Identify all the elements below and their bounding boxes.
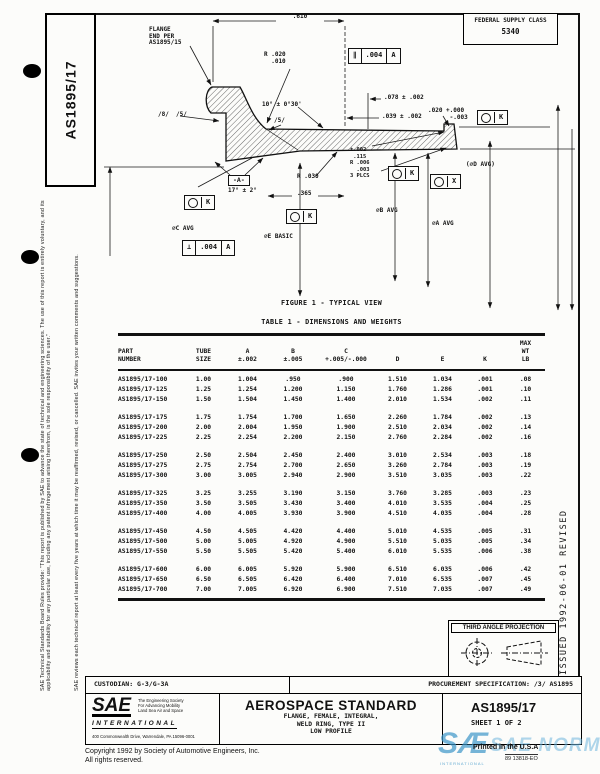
- sheet-number: SHEET 1 OF 2: [471, 719, 581, 727]
- table-row: AS1895/17-2752.752.7542.7002.6503.2602.7…: [118, 461, 545, 471]
- table-cell: 6.005: [227, 565, 268, 575]
- table-cell: 3.25: [180, 489, 227, 499]
- table-cell: .23: [506, 489, 545, 499]
- table-cell: .002: [464, 433, 506, 443]
- table-cell: 1.754: [227, 413, 268, 423]
- table-cell: 6.920: [268, 585, 318, 595]
- table-cell: .007: [464, 585, 506, 595]
- table-cell: 1.254: [227, 385, 268, 395]
- table-cell: 1.50: [180, 395, 227, 405]
- table-cell: .005: [464, 527, 506, 537]
- table-title: TABLE 1 - DIMENSIONS AND WEIGHTS: [118, 318, 545, 326]
- table-cell: 7.035: [421, 585, 464, 595]
- sae-international: INTERNATIONAL: [92, 720, 177, 729]
- table-cell: 5.005: [227, 537, 268, 547]
- table-cell: 3.190: [268, 489, 318, 499]
- table-cell: 2.004: [227, 423, 268, 433]
- table-cell: .28: [506, 509, 545, 519]
- table-cell: 3.430: [268, 499, 318, 509]
- table-cell: .003: [464, 461, 506, 471]
- table-cell: 1.950: [268, 423, 318, 433]
- table-row: AS1895/17-4504.504.5054.4204.4005.0104.5…: [118, 527, 545, 537]
- issued-revised-strip: ISSUED 1992-06-01 REVISED: [559, 405, 575, 675]
- table-row: AS1895/17-1751.751.7541.7001.6502.2601.7…: [118, 413, 545, 423]
- table-cell: .08: [506, 375, 545, 385]
- table-cell: 5.900: [318, 565, 374, 575]
- sae-logo-cell: SAE The Engineering Society For Advancin…: [86, 694, 220, 744]
- table-cell: AS1895/17-275: [118, 461, 180, 471]
- figure-dimension-label: .020 +.000 -.003: [428, 108, 468, 121]
- figure-dimension-label: ⌀A AVG: [432, 221, 454, 228]
- table-cell: 2.25: [180, 433, 227, 443]
- table-cell: 6.010: [374, 547, 421, 557]
- print-code: 89 13818-EO: [505, 754, 538, 762]
- printed-in-usa: Printed in the U.S.A: [473, 744, 538, 751]
- table-cell: 2.284: [421, 433, 464, 443]
- table-cell: AS1895/17-650: [118, 575, 180, 585]
- table-cell: 4.005: [227, 509, 268, 519]
- document-type: AEROSPACE STANDARD: [220, 698, 442, 713]
- table-cell: 2.450: [268, 451, 318, 461]
- table-cell: 1.034: [421, 375, 464, 385]
- table-cell: 1.75: [180, 413, 227, 423]
- figure-dimension-label: .039 ± .002: [382, 114, 422, 121]
- table-cell: 4.900: [318, 537, 374, 547]
- table-row: AS1895/17-1001.001.004.950.9001.5101.034…: [118, 375, 545, 385]
- datum-circle-icon: [392, 169, 402, 179]
- table-cell: 5.510: [374, 537, 421, 547]
- table-cell: 6.505: [227, 575, 268, 585]
- figure-dimension-label: ⌀B AVG: [376, 208, 398, 215]
- table-header-cell: B ±.005: [268, 348, 318, 368]
- table-cell: 1.25: [180, 385, 227, 395]
- figure-dimension-label: /8/ /5/: [158, 112, 187, 119]
- scanned-standard-page: AS1895/17 FEDERAL SUPPLY CLASS 5340 SAE …: [0, 0, 600, 774]
- table-row: AS1895/17-1501.501.5041.4501.4002.0101.5…: [118, 395, 545, 405]
- table-cell: AS1895/17-350: [118, 499, 180, 509]
- table-cell: 5.505: [227, 547, 268, 557]
- table-row: AS1895/17-3003.003.0052.9402.9003.5103.0…: [118, 471, 545, 481]
- figure-annotations: .610FLANGE END PER AS1895/15R .020 .0101…: [0, 0, 600, 340]
- table-cell: .14: [506, 423, 545, 433]
- table-cell: 7.005: [227, 585, 268, 595]
- table-cell: 3.150: [318, 489, 374, 499]
- datum-target-symbol: K: [388, 166, 419, 181]
- table-cell: 3.285: [421, 489, 464, 499]
- table-cell: 2.784: [421, 461, 464, 471]
- table-cell: 2.940: [268, 471, 318, 481]
- table-cell: .001: [464, 375, 506, 385]
- datum-circle-icon: [290, 212, 300, 222]
- table-cell: 2.510: [374, 423, 421, 433]
- table-cell: 6.400: [318, 575, 374, 585]
- table-cell: AS1895/17-550: [118, 547, 180, 557]
- table-cell: 2.400: [318, 451, 374, 461]
- table-cell: 2.754: [227, 461, 268, 471]
- table-cell: 4.510: [374, 509, 421, 519]
- table-cell: 3.260: [374, 461, 421, 471]
- table-cell: 1.534: [421, 395, 464, 405]
- table-cell: .900: [318, 375, 374, 385]
- figure-dimension-label: ⌀C AVG: [172, 226, 194, 233]
- table-row: AS1895/17-2502.502.5042.4502.4003.0102.5…: [118, 451, 545, 461]
- table-cell: 7.010: [374, 575, 421, 585]
- table-cell: 3.50: [180, 499, 227, 509]
- table-cell: 1.504: [227, 395, 268, 405]
- table-cell: .16: [506, 433, 545, 443]
- table-cell: 3.400: [318, 499, 374, 509]
- table-cell: 5.920: [268, 565, 318, 575]
- sae-address: 400 Commonwealth Drive, Warrendale, PA 1…: [92, 734, 195, 739]
- table-cell: 1.00: [180, 375, 227, 385]
- table-cell: 1.286: [421, 385, 464, 395]
- table-cell: AS1895/17-250: [118, 451, 180, 461]
- table-cell: .31: [506, 527, 545, 537]
- table-row: AS1895/17-5505.505.5055.4205.4006.0105.5…: [118, 547, 545, 557]
- table-cell: .13: [506, 413, 545, 423]
- table-cell: AS1895/17-500: [118, 537, 180, 547]
- table-cell: 7.00: [180, 585, 227, 595]
- figure-dimension-label: ±.002 .115 R .006 .003 3 PLCS: [350, 147, 369, 180]
- table-cell: 2.534: [421, 451, 464, 461]
- table-cell: .004: [464, 499, 506, 509]
- datum-target-symbol: K: [477, 110, 508, 125]
- table-cell: 6.035: [421, 565, 464, 575]
- datum-target-symbol: K: [184, 195, 215, 210]
- table-row: AS1895/17-6006.006.0055.9205.9006.5106.0…: [118, 565, 545, 575]
- table-cell: .25: [506, 499, 545, 509]
- table-row: AS1895/17-3253.253.2553.1903.1503.7603.2…: [118, 489, 545, 499]
- table-cell: 3.510: [374, 471, 421, 481]
- table-cell: 4.505: [227, 527, 268, 537]
- table-header-cell: TUBE SIZE: [180, 348, 227, 368]
- figure-dimension-label: 10° ± 0°30': [262, 102, 302, 109]
- table-row: AS1895/17-1251.251.2541.2001.1501.7601.2…: [118, 385, 545, 395]
- table-cell: 4.00: [180, 509, 227, 519]
- table-cell: .002: [464, 423, 506, 433]
- table-cell: .003: [464, 471, 506, 481]
- figure-dimension-label: .610: [293, 14, 307, 21]
- vendor-watermark: SÆ SAE NORM INTERNATIONAL: [438, 729, 600, 774]
- table-cell: .005: [464, 537, 506, 547]
- figure-dimension-label: .365: [297, 191, 311, 198]
- table-cell: 5.00: [180, 537, 227, 547]
- table-cell: 1.400: [318, 395, 374, 405]
- table-cell: 1.004: [227, 375, 268, 385]
- table-cell: 3.505: [227, 499, 268, 509]
- figure-dimension-label: R .030: [297, 174, 319, 181]
- third-angle-projection-label: THIRD ANGLE PROJECTION: [451, 623, 556, 633]
- table-cell: AS1895/17-700: [118, 585, 180, 595]
- figure-dimension-label: FLANGE END PER AS1895/15: [149, 27, 182, 47]
- table-cell: 2.254: [227, 433, 268, 443]
- dimensions-table: PART NUMBERTUBE SIZEA ±.002B ±.005C +.00…: [118, 333, 545, 603]
- table-header-cell: K: [464, 356, 506, 368]
- table-row: AS1895/17-3503.503.5053.4303.4004.0103.5…: [118, 499, 545, 509]
- table-cell: 2.650: [318, 461, 374, 471]
- table-cell: .950: [268, 375, 318, 385]
- sae-tagline: The Engineering Society For Advancing Mo…: [138, 698, 184, 713]
- table-cell: 5.420: [268, 547, 318, 557]
- table-header-cell: A ±.002: [227, 348, 268, 368]
- table-cell: 4.920: [268, 537, 318, 547]
- table-cell: 2.200: [268, 433, 318, 443]
- table-cell: 1.900: [318, 423, 374, 433]
- table-header-cell: D: [374, 356, 421, 368]
- table-cell: .34: [506, 537, 545, 547]
- figure-dimension-label: ⌀E BASIC: [264, 234, 293, 241]
- datum-circle-icon: [188, 198, 198, 208]
- table-cell: 2.010: [374, 395, 421, 405]
- table-cell: AS1895/17-225: [118, 433, 180, 443]
- table-cell: .007: [464, 575, 506, 585]
- table-cell: .49: [506, 585, 545, 595]
- table-cell: AS1895/17-325: [118, 489, 180, 499]
- table-cell: .11: [506, 395, 545, 405]
- table-cell: 2.260: [374, 413, 421, 423]
- table-cell: 2.75: [180, 461, 227, 471]
- figure-dimension-label: R .020 .010: [264, 52, 286, 65]
- table-cell: AS1895/17-300: [118, 471, 180, 481]
- table-cell: AS1895/17-175: [118, 413, 180, 423]
- table-cell: 1.510: [374, 375, 421, 385]
- table-cell: 4.535: [421, 527, 464, 537]
- table-cell: 4.50: [180, 527, 227, 537]
- table-cell: 5.035: [421, 537, 464, 547]
- table-cell: 1.760: [374, 385, 421, 395]
- table-header-cell: E: [421, 356, 464, 368]
- table-cell: 4.035: [421, 509, 464, 519]
- table-cell: .003: [464, 451, 506, 461]
- table-row: AS1895/17-4004.004.0053.9303.9004.5104.0…: [118, 509, 545, 519]
- table-cell: 3.005: [227, 471, 268, 481]
- table-cell: 1.200: [268, 385, 318, 395]
- table-cell: .006: [464, 565, 506, 575]
- document-number: AS1895/17: [471, 700, 581, 715]
- figure-dimension-label: (⌀D AVG): [466, 162, 495, 169]
- table-cell: .002: [464, 413, 506, 423]
- table-cell: 5.50: [180, 547, 227, 557]
- table-cell: .004: [464, 509, 506, 519]
- table-cell: 4.010: [374, 499, 421, 509]
- table-cell: 5.535: [421, 547, 464, 557]
- copyright-notice: Copyright 1992 by Society of Automotive …: [85, 747, 260, 765]
- table-cell: .45: [506, 575, 545, 585]
- table-header-row: PART NUMBERTUBE SIZEA ±.002B ±.005C +.00…: [118, 338, 545, 368]
- table-cell: 2.900: [318, 471, 374, 481]
- table-cell: 6.900: [318, 585, 374, 595]
- third-angle-projection-symbol: [449, 635, 554, 671]
- table-cell: 3.255: [227, 489, 268, 499]
- table-cell: 2.034: [421, 423, 464, 433]
- table-cell: AS1895/17-100: [118, 375, 180, 385]
- table-cell: AS1895/17-450: [118, 527, 180, 537]
- figure-caption: FIGURE 1 - TYPICAL VIEW: [118, 299, 545, 307]
- table-header-cell: PART NUMBER: [118, 348, 180, 368]
- table-cell: 2.150: [318, 433, 374, 443]
- feature-control-frame: ∥.004A: [348, 48, 401, 64]
- procurement-specification: PROCUREMENT SPECIFICATION: /3/ AS1895: [290, 677, 581, 694]
- table-cell: 4.420: [268, 527, 318, 537]
- third-angle-projection-box: THIRD ANGLE PROJECTION: [448, 620, 559, 678]
- table-cell: 7.510: [374, 585, 421, 595]
- table-cell: 2.00: [180, 423, 227, 433]
- table-cell: .10: [506, 385, 545, 395]
- datum-target-symbol: X: [430, 174, 461, 189]
- table-cell: 2.504: [227, 451, 268, 461]
- table-cell: 1.650: [318, 413, 374, 423]
- custodian-value: CUSTODIAN: G-3/G-3A: [86, 677, 290, 694]
- table-cell: 3.760: [374, 489, 421, 499]
- table-body: AS1895/17-1001.001.004.950.9001.5101.034…: [118, 375, 545, 595]
- watermark-subtext: INTERNATIONAL: [440, 761, 485, 766]
- table-cell: .006: [464, 547, 506, 557]
- table-cell: 1.700: [268, 413, 318, 423]
- table-cell: 2.760: [374, 433, 421, 443]
- table-row: AS1895/17-6506.506.5056.4206.4007.0106.5…: [118, 575, 545, 585]
- figure-dimension-label: 17° ± 2°: [228, 188, 257, 195]
- table-row: AS1895/17-2002.002.0041.9501.9002.5102.0…: [118, 423, 545, 433]
- table-cell: 3.900: [318, 509, 374, 519]
- table-cell: .42: [506, 565, 545, 575]
- table-cell: 3.00: [180, 471, 227, 481]
- table-cell: .38: [506, 547, 545, 557]
- feature-control-frame: ⊥.004A: [182, 240, 235, 256]
- table-cell: .22: [506, 471, 545, 481]
- table-cell: 4.400: [318, 527, 374, 537]
- figure-dimension-label: .078 ± .002: [384, 95, 424, 102]
- table-row: AS1895/17-7007.007.0056.9206.9007.5107.0…: [118, 585, 545, 595]
- table-cell: 2.50: [180, 451, 227, 461]
- table-cell: 1.784: [421, 413, 464, 423]
- table-header-cell: C +.005/-.000: [318, 348, 374, 368]
- table-cell: AS1895/17-150: [118, 395, 180, 405]
- datum-circle-icon: [434, 177, 444, 187]
- table-header-cell: MAX WT LB: [506, 340, 545, 368]
- document-type-cell: AEROSPACE STANDARD FLANGE, FEMALE, INTEG…: [220, 694, 443, 744]
- punch-hole: [21, 448, 39, 462]
- table-cell: 6.50: [180, 575, 227, 585]
- datum-circle-icon: [481, 113, 491, 123]
- table-cell: 1.150: [318, 385, 374, 395]
- table-cell: AS1895/17-200: [118, 423, 180, 433]
- table-cell: 2.700: [268, 461, 318, 471]
- table-cell: 6.535: [421, 575, 464, 585]
- table-row: AS1895/17-5005.005.0054.9204.9005.5105.0…: [118, 537, 545, 547]
- datum-identifier-box: -A-: [228, 175, 250, 186]
- table-cell: 6.510: [374, 565, 421, 575]
- table-cell: 3.010: [374, 451, 421, 461]
- table-cell: 6.420: [268, 575, 318, 585]
- table-cell: 1.450: [268, 395, 318, 405]
- table-cell: .001: [464, 385, 506, 395]
- table-cell: 6.00: [180, 565, 227, 575]
- table-cell: 5.400: [318, 547, 374, 557]
- datum-target-symbol: K: [286, 209, 317, 224]
- table-cell: AS1895/17-600: [118, 565, 180, 575]
- table-cell: .18: [506, 451, 545, 461]
- table-row: AS1895/17-2252.252.2542.2002.1502.7602.2…: [118, 433, 545, 443]
- table-cell: AS1895/17-400: [118, 509, 180, 519]
- table-cell: .003: [464, 489, 506, 499]
- figure-dimension-label: /5/: [274, 118, 285, 125]
- sae-logo: SAE: [92, 697, 131, 717]
- table-cell: 3.930: [268, 509, 318, 519]
- table-cell: AS1895/17-125: [118, 385, 180, 395]
- table-cell: 3.535: [421, 499, 464, 509]
- document-subtitle: FLANGE, FEMALE, INTEGRAL, WELD RING, TYP…: [220, 713, 442, 736]
- table-cell: 5.010: [374, 527, 421, 537]
- table-cell: .19: [506, 461, 545, 471]
- table-cell: 3.035: [421, 471, 464, 481]
- table-cell: .002: [464, 395, 506, 405]
